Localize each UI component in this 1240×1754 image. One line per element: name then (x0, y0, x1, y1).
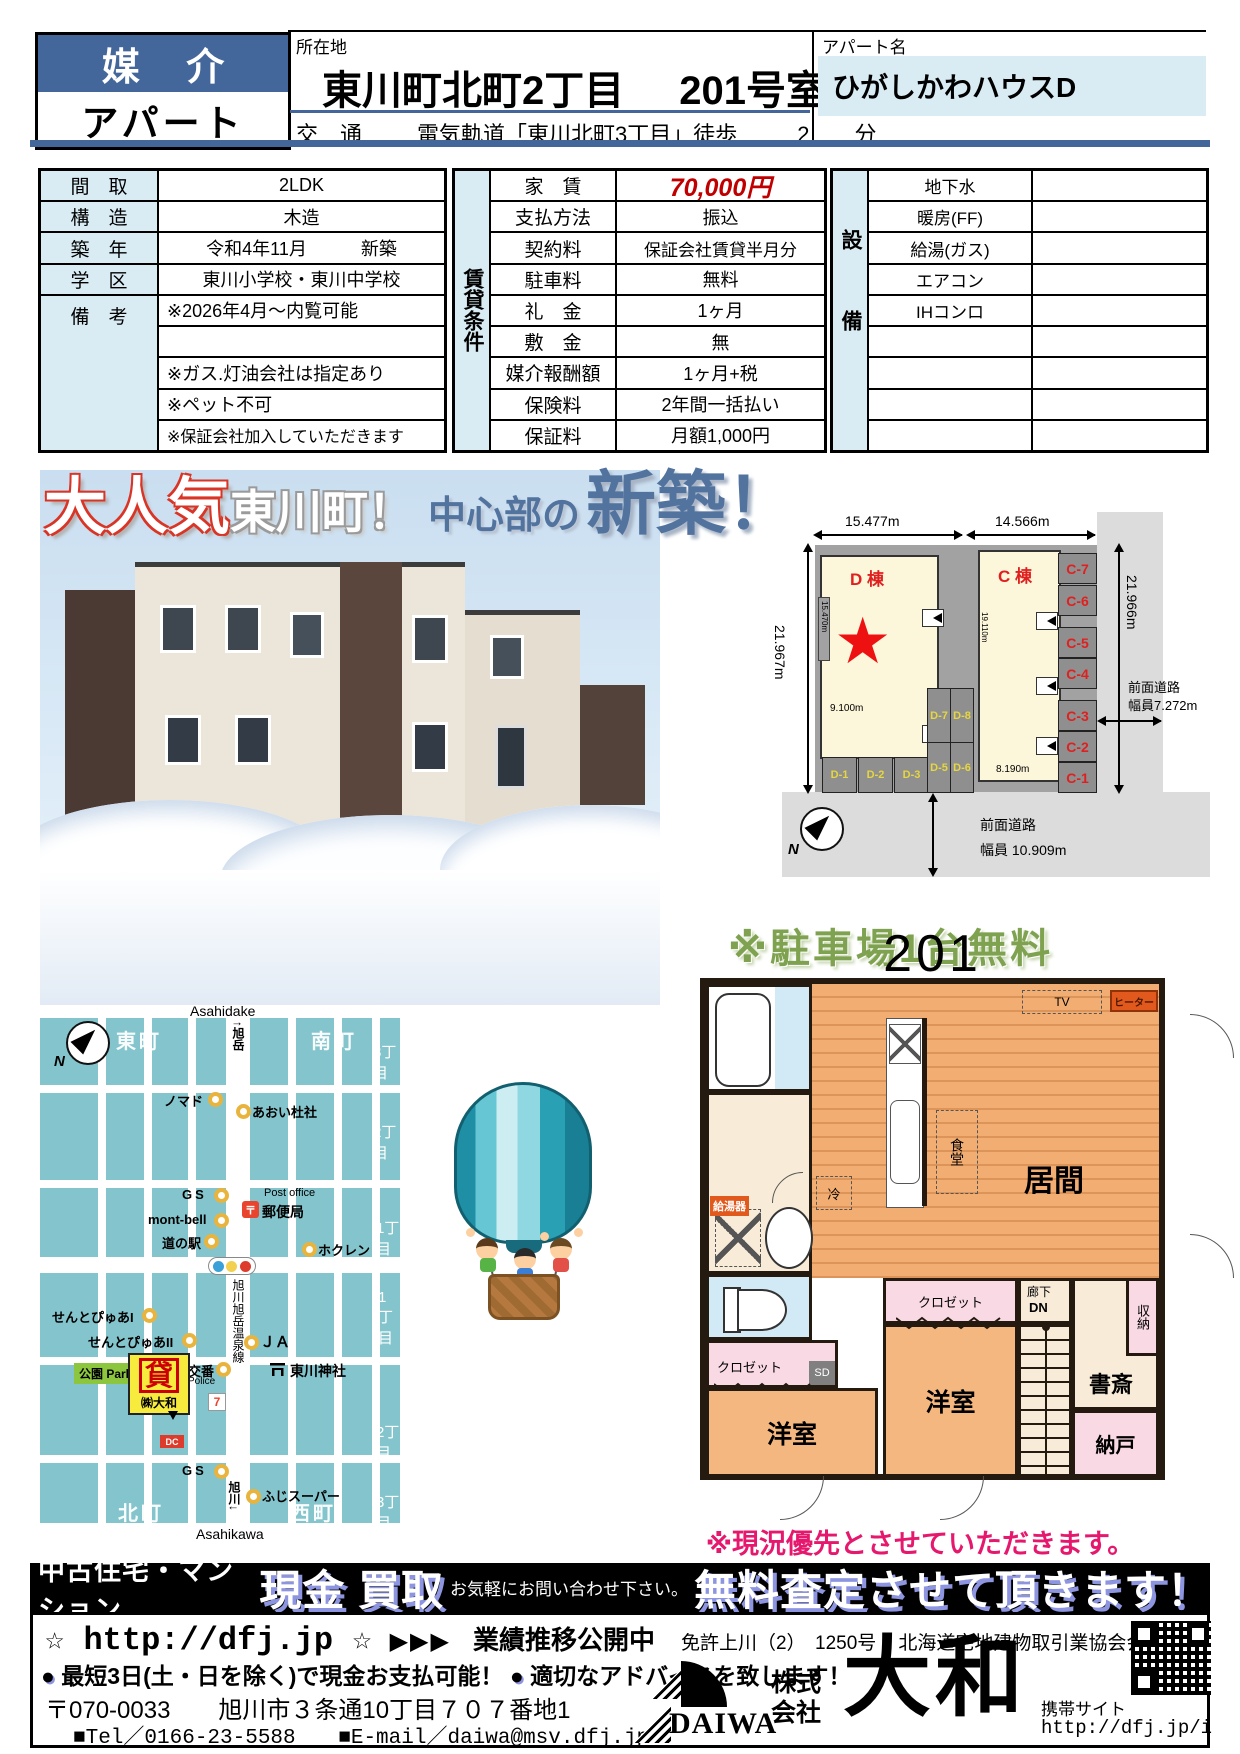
equipment-value (1032, 389, 1207, 420)
rental-label: 敷 金 (490, 326, 616, 357)
equipment-item: 地下水 (868, 170, 1032, 201)
overview-value: 2LDK (158, 170, 445, 201)
compass-n-label: N (788, 841, 799, 858)
post-office-icon: 〒 (242, 1201, 259, 1218)
equipment-value (1032, 232, 1207, 263)
equipment-item (868, 326, 1032, 357)
footer-contact: ■Tel／0166-23-5588 ■E-mail／daiwa@msv.dfj.… (73, 1720, 649, 1750)
poi-postoffice-jp: 郵便局 (262, 1202, 304, 1222)
door-symbol (1036, 612, 1058, 630)
poi-dot (244, 1335, 259, 1350)
qr-finder (1133, 1623, 1155, 1645)
poi-asahikawa-en: Asahikawa (196, 1526, 264, 1542)
rental-value: 1ヶ月 (616, 295, 825, 326)
dim-top-right: 14.566m (995, 513, 1049, 529)
fp-toilet-room (706, 1274, 812, 1340)
map-compass-icon (66, 1021, 110, 1065)
fp-dn-label: DN (1029, 1300, 1048, 1315)
fp-western-room-1: 洋室 (706, 1388, 878, 1477)
poi-dot (246, 1489, 261, 1504)
stall-c5: C-5 (1058, 627, 1097, 658)
building-c-dim-width: 8.190m (996, 764, 1029, 775)
fp-living: 居間 (1024, 1156, 1084, 1200)
rental-label: 家 賃 (490, 170, 616, 201)
marker-company: ㈱大和 (130, 1394, 188, 1413)
photo-window (412, 722, 448, 772)
equipment-item (868, 420, 1032, 451)
dim-arrow-top-d (815, 534, 962, 536)
poi-dot (236, 1104, 251, 1119)
location-value: 東川町北町2丁目201号室 (322, 58, 826, 116)
overview-remark (158, 326, 445, 357)
poi-dot (216, 1362, 231, 1377)
banner-contact: お気軽にお問い合わせ下さい。 (450, 1575, 688, 1600)
rental-label: 媒介報酬額 (490, 357, 616, 388)
fp-storage: 収納 (1126, 1278, 1159, 1356)
header-blue-bar (30, 140, 1210, 147)
overview-remark: ※ペット不可 (158, 389, 445, 420)
rental-label: 礼 金 (490, 295, 616, 326)
stall-d3: D-3 (894, 757, 929, 793)
location-text: 東川町北町2丁目 (322, 69, 624, 113)
building-d-star: ★ (834, 609, 891, 673)
building-c-label: C 棟 (998, 562, 1032, 587)
road-right-arrow (1099, 720, 1161, 722)
building-photo (40, 470, 660, 1005)
fp-bathtub (715, 993, 771, 1087)
balloon-envelope (454, 1082, 592, 1244)
equipment-item (868, 357, 1032, 388)
road-right-label1: 前面道路 (1128, 677, 1180, 696)
balloon-kid-head (514, 1248, 536, 1270)
site-building-c: C 棟 19.110m 8.190m (978, 550, 1061, 782)
equipment-value (1032, 264, 1207, 295)
balloon-illustration (432, 1082, 622, 1332)
fp-washer (889, 1024, 921, 1064)
fp-folding-door-zigzag (896, 1316, 1004, 1330)
stall-c1: C-1 (1058, 762, 1097, 793)
qr-finder (1133, 1671, 1155, 1693)
catch-part1: 大人気 (44, 456, 230, 546)
rental-label: 支払方法 (490, 201, 616, 232)
stall-d2: D-2 (858, 757, 893, 793)
footer-url: ☆ http://dfj.jp ☆ (45, 1619, 372, 1659)
footer-performance: 業績推移公開中 (473, 1620, 655, 1657)
stall-c2: C-2 (1058, 731, 1097, 762)
bullet-icon: ● (41, 1663, 55, 1689)
floor-plan-title: 201 (700, 924, 1165, 984)
poi-dot (204, 1234, 219, 1249)
footer-banner: 中古住宅・マンション 現金 買取 お気軽にお問い合わせ下さい。 無料査定させて頂… (30, 1563, 1210, 1612)
equipment-item: 暖房(FF) (868, 201, 1032, 232)
fp-door-arc (1146, 1234, 1234, 1322)
fp-nando: 納戸 (1072, 1410, 1159, 1477)
marker-kashi: 貸 (139, 1358, 179, 1393)
poi-dot (142, 1308, 157, 1323)
road-bottom-label2: 幅員 10.909m (980, 840, 1066, 860)
map-town-nishimachi: 西町 (290, 1497, 336, 1526)
poi-dot (214, 1188, 229, 1203)
equipment-item (868, 389, 1032, 420)
fp-wood-floor (812, 984, 1159, 1278)
fp-bath-floor (775, 987, 809, 1089)
map-asahidake-jp: ↑旭岳 (230, 1021, 247, 1051)
equipment-item: エアコン (868, 264, 1032, 295)
poi-dot (214, 1464, 229, 1479)
footer-email: ■E-mail／daiwa@msv.dfj.jp (338, 1727, 649, 1750)
fp-basin (765, 1207, 813, 1269)
property-type-label: アパート (38, 92, 288, 147)
overview-value: 令和4年11月 新築 (158, 232, 445, 263)
dim-arrow-left (807, 545, 809, 792)
stall-c7: C-7 (1058, 553, 1097, 584)
balloon-kid-body (553, 1258, 569, 1272)
equipment-value (1032, 170, 1207, 201)
map-road (40, 1085, 400, 1093)
dim-arrow-right (1118, 545, 1120, 792)
company-type: 株式 会社 (771, 1669, 821, 1728)
fp-closet-1: クロゼット SD (706, 1340, 838, 1388)
door-symbol (1036, 677, 1058, 695)
rental-vertical-label: 賃貸条件 (454, 170, 490, 451)
bullet-icon: ● (510, 1663, 524, 1689)
footer-arrows: ▶▶▶ (390, 1627, 451, 1656)
banner-free-assessment: 無料査定させて頂きます！ (694, 1563, 1210, 1612)
poi-sentpure1: せんとぴゅあI (52, 1307, 134, 1326)
door-symbol (922, 609, 944, 627)
fp-stairs (1018, 1324, 1072, 1477)
condition-note: ※現況優先とさせていただきます。 (680, 1522, 1160, 1561)
compass-icon (800, 807, 844, 851)
equipment-item: IHコンロ (868, 295, 1032, 326)
photo-window (165, 715, 201, 765)
fp-sink (890, 1100, 920, 1184)
rental-table: 賃貸条件 家 賃 70,000円 支払方法 振込 契約料 保証会社賃貸半月分 駐… (452, 168, 827, 453)
stall-d1: D-1 (822, 757, 857, 793)
fp-laundry-space (715, 1209, 761, 1267)
header-top-rule (288, 30, 1206, 32)
fp-fridge: 冷 (816, 1176, 852, 1210)
equipment-value (1032, 295, 1207, 326)
header-divider-1 (288, 30, 290, 142)
rental-value: 振込 (616, 201, 825, 232)
map-chome: 3丁目 (373, 1041, 400, 1083)
footer-info-box: ☆ http://dfj.jp ☆ ▶▶▶ 業績推移公開中 免許上川（2） 12… (30, 1612, 1210, 1748)
fp-dining: 食堂 (936, 1110, 978, 1194)
dim-left: 21.967m (772, 625, 788, 679)
photo-window (235, 715, 271, 765)
poi-dot (302, 1242, 317, 1257)
map-town-minamimachi: 南町 (311, 1025, 357, 1054)
rental-value: 1ヶ月+税 (616, 357, 825, 388)
overview-label: 間 取 (40, 170, 158, 201)
fp-stairs-post (1042, 1323, 1050, 1331)
fp-study-label: 書斎 (1089, 1367, 1133, 1399)
poi-montbell: mont-bell (148, 1212, 207, 1227)
rental-label: 駐車料 (490, 264, 616, 295)
banner-cash-buy: 現金 買取 (259, 1563, 444, 1612)
poi-police: Police (188, 1376, 215, 1387)
door-symbol (1036, 737, 1058, 755)
poi-hokuren: ホクレン (318, 1240, 370, 1259)
map-chome: 1丁目 (376, 1217, 400, 1259)
poi-postoffice-en: Post office (264, 1187, 315, 1199)
equipment-item: 給湯(ガス) (868, 232, 1032, 263)
poi-asahikawa-jp: 旭川↓ (226, 1481, 243, 1511)
poi-dot (208, 1092, 223, 1107)
overview-remark: ※保証会社加入していただきます (158, 420, 445, 451)
poi-michinoeki: 道の駅 (162, 1233, 201, 1252)
location-label: 所在地 (296, 33, 347, 58)
rental-value: 無 (616, 326, 825, 357)
shrine-torii-icon (270, 1363, 285, 1376)
building-d-label: D 棟 (850, 565, 884, 590)
photo-snow-ground (40, 870, 660, 1005)
building-d-dim-width: 9.100m (830, 703, 863, 714)
building-d-dim-left: 15.470m (820, 601, 829, 632)
dim-top-left: 15.477m (845, 513, 899, 529)
equipment-value (1032, 201, 1207, 232)
stall-d6: D-6 (950, 742, 974, 793)
fp-toilet-bowl (737, 1289, 787, 1331)
balloon-kid-head (550, 1238, 572, 1260)
poi-shrine: 東川神社 (290, 1361, 346, 1381)
company-kabushiki: 株式 (771, 1669, 821, 1699)
map-road (40, 1455, 400, 1463)
overview-label: 構 造 (40, 201, 158, 232)
stall-c3: C-3 (1058, 700, 1097, 731)
fp-western-room-2: 洋室 (883, 1324, 1018, 1477)
daiwa-logo-mark (633, 1705, 671, 1743)
stall-d8: D-8 (950, 688, 974, 743)
poi-gs1: GS (182, 1187, 207, 1202)
poi-dot (214, 1213, 229, 1228)
rental-vertical-text: 賃貸条件 (457, 268, 487, 352)
mobile-site-url: http://dfj.jp/i (1041, 1717, 1212, 1739)
traffic-light-icon (208, 1257, 256, 1275)
road-bottom-label1: 前面道路 (980, 815, 1036, 835)
catch-part3: 中心部の (428, 484, 580, 539)
fp-tv: TV (1022, 990, 1102, 1014)
fp-closet-1-label: クロゼット (717, 1357, 782, 1376)
equipment-value (1032, 326, 1207, 357)
balloon-kid-head (476, 1238, 498, 1260)
floor-plan: 冷 TV ヒーター 食堂 居間 給湯器 クロゼット SD 洋室 洋室 クロゼット… (700, 978, 1165, 1480)
fp-bathroom (706, 984, 812, 1092)
overview-label-remarks: 備 考 (40, 295, 158, 451)
rental-value: 無料 (616, 264, 825, 295)
map-road-name: 旭川旭岳温泉線 (230, 1279, 247, 1363)
fp-heater: ヒーター (1110, 990, 1158, 1012)
property-marker: 貸 ㈱大和 (128, 1353, 190, 1415)
map-town-kitamachi: 北町 (118, 1497, 164, 1526)
equipment-value (1032, 420, 1207, 451)
equipment-table: 設備 地下水 暖房(FF) 給湯(ガス) エアコン IHコンロ (830, 168, 1209, 453)
stall-d7: D-7 (927, 688, 951, 743)
room-number: 201号室 (679, 69, 826, 113)
poi-dc: DC (160, 1435, 184, 1448)
photo-window (412, 615, 448, 663)
qr-finder (1187, 1623, 1209, 1645)
balloon-basket (488, 1274, 560, 1320)
map-asahidake-en: Asahidake (190, 1005, 255, 1019)
stall-c4: C-4 (1058, 658, 1097, 689)
overview-remark: ※2026年4月～内覧可能 (158, 295, 445, 326)
map-chome: 1丁目 (378, 1289, 400, 1348)
daiwa-logo-quarter (681, 1661, 727, 1707)
rental-value: 月額1,000円 (616, 420, 825, 451)
qr-code (1131, 1621, 1211, 1695)
deal-type-box: 媒 介 アパート (35, 32, 291, 150)
overview-remark: ※ガス.灯油会社は指定あり (158, 357, 445, 388)
photo-building-brown-band (340, 562, 402, 840)
poi-nomado: ノマド (164, 1091, 203, 1110)
balloon-kid-hand (574, 1228, 583, 1237)
seven-eleven-icon: 7 (208, 1393, 226, 1411)
balloon-kid-body (480, 1258, 496, 1272)
overview-table: 間 取 2LDK 構 造 木造 築 年 令和4年11月 新築 学 区 東川小学校… (38, 168, 447, 453)
fp-hallway-label: 廊下 (1027, 1283, 1051, 1300)
equipment-value (1032, 357, 1207, 388)
photo-window (225, 605, 261, 653)
fp-water-heater: 給湯器 (710, 1196, 749, 1216)
photo-window (490, 635, 524, 679)
deal-type-label: 媒 介 (38, 35, 288, 92)
footer-tel: ■Tel／0166-23-5588 (73, 1727, 296, 1750)
map-chome: 2丁目 (373, 1121, 400, 1163)
overview-label: 築 年 (40, 232, 158, 263)
poi-aoi: あおい杜社 (252, 1102, 317, 1121)
area-map: Asahidake ↑旭岳 N 東町 南町 3丁目 2丁目 1丁目 1丁目 2丁… (40, 1005, 400, 1545)
rent-price: 70,000円 (616, 170, 825, 201)
balloon-kid-hand (466, 1228, 475, 1237)
stall-c6: C-6 (1058, 585, 1097, 616)
poi-sentpure2: せんとぴゅあII (88, 1332, 173, 1351)
catch-copy: 大人気 東川町！ 中心部の 新築！ (44, 448, 796, 549)
rental-value: 保証会社賃貸半月分 (616, 232, 825, 263)
photo-window (290, 612, 324, 658)
equipment-vertical-text: 設備 (835, 229, 865, 391)
dim-arrow-top-c (968, 534, 1095, 536)
stall-d5: D-5 (927, 742, 951, 793)
map-chome: 3丁目 (376, 1491, 400, 1533)
map-town-higashimachi: 東町 (116, 1025, 162, 1054)
fp-door-arc (1146, 1014, 1234, 1102)
site-building-d: D 棟 15.470m ★ 9.100m (820, 555, 939, 759)
poi-dot (182, 1333, 197, 1348)
photo-window (160, 605, 196, 653)
photo-door (495, 725, 527, 789)
catch-part4: 新築！ (586, 448, 796, 549)
fp-hallway: 廊下 DN (1018, 1278, 1072, 1324)
footer-point-1: 最短3日(土・日を除く)で現金お支払可能！ (61, 1663, 503, 1689)
rental-label: 契約料 (490, 232, 616, 263)
equipment-vertical-label: 設備 (832, 170, 868, 451)
map-road (40, 1180, 400, 1188)
daiwa-logo-text: DAIWA (669, 1707, 777, 1741)
poi-ja: ＪＡ (260, 1331, 290, 1352)
company-kaisha: 会社 (771, 1699, 821, 1729)
apartment-name-label: アパート名 (822, 33, 907, 58)
overview-label: 学 区 (40, 264, 158, 295)
building-c-dim-left: 19.110m (980, 612, 989, 643)
overview-value: 東川小学校・東川中学校 (158, 264, 445, 295)
apartment-name-value: ひがしかわハウスD (818, 56, 1206, 116)
rental-value: 2年間一括払い (616, 389, 825, 420)
fp-wall (922, 1018, 927, 1206)
photo-building-annex (580, 685, 645, 805)
road-right-label2: 幅員7.272m (1128, 695, 1197, 714)
rental-label: 保険料 (490, 389, 616, 420)
catch-part2: 東川町！ (230, 476, 414, 542)
dim-right: 21.966m (1124, 575, 1140, 629)
map-compass-n: N (54, 1053, 65, 1070)
overview-value: 木造 (158, 201, 445, 232)
address-underline (290, 110, 810, 113)
fp-stairs-rail (1045, 1327, 1047, 1474)
company-name: 大和 (843, 1607, 1027, 1734)
map-chome: 2丁目 (376, 1421, 400, 1463)
rental-label: 保証料 (490, 420, 616, 451)
poi-gs2: GS (182, 1463, 207, 1478)
banner-left: 中古住宅・マンション (30, 1563, 253, 1612)
road-bottom-arrow (932, 795, 934, 875)
balloon-kid-hand (540, 1232, 549, 1241)
